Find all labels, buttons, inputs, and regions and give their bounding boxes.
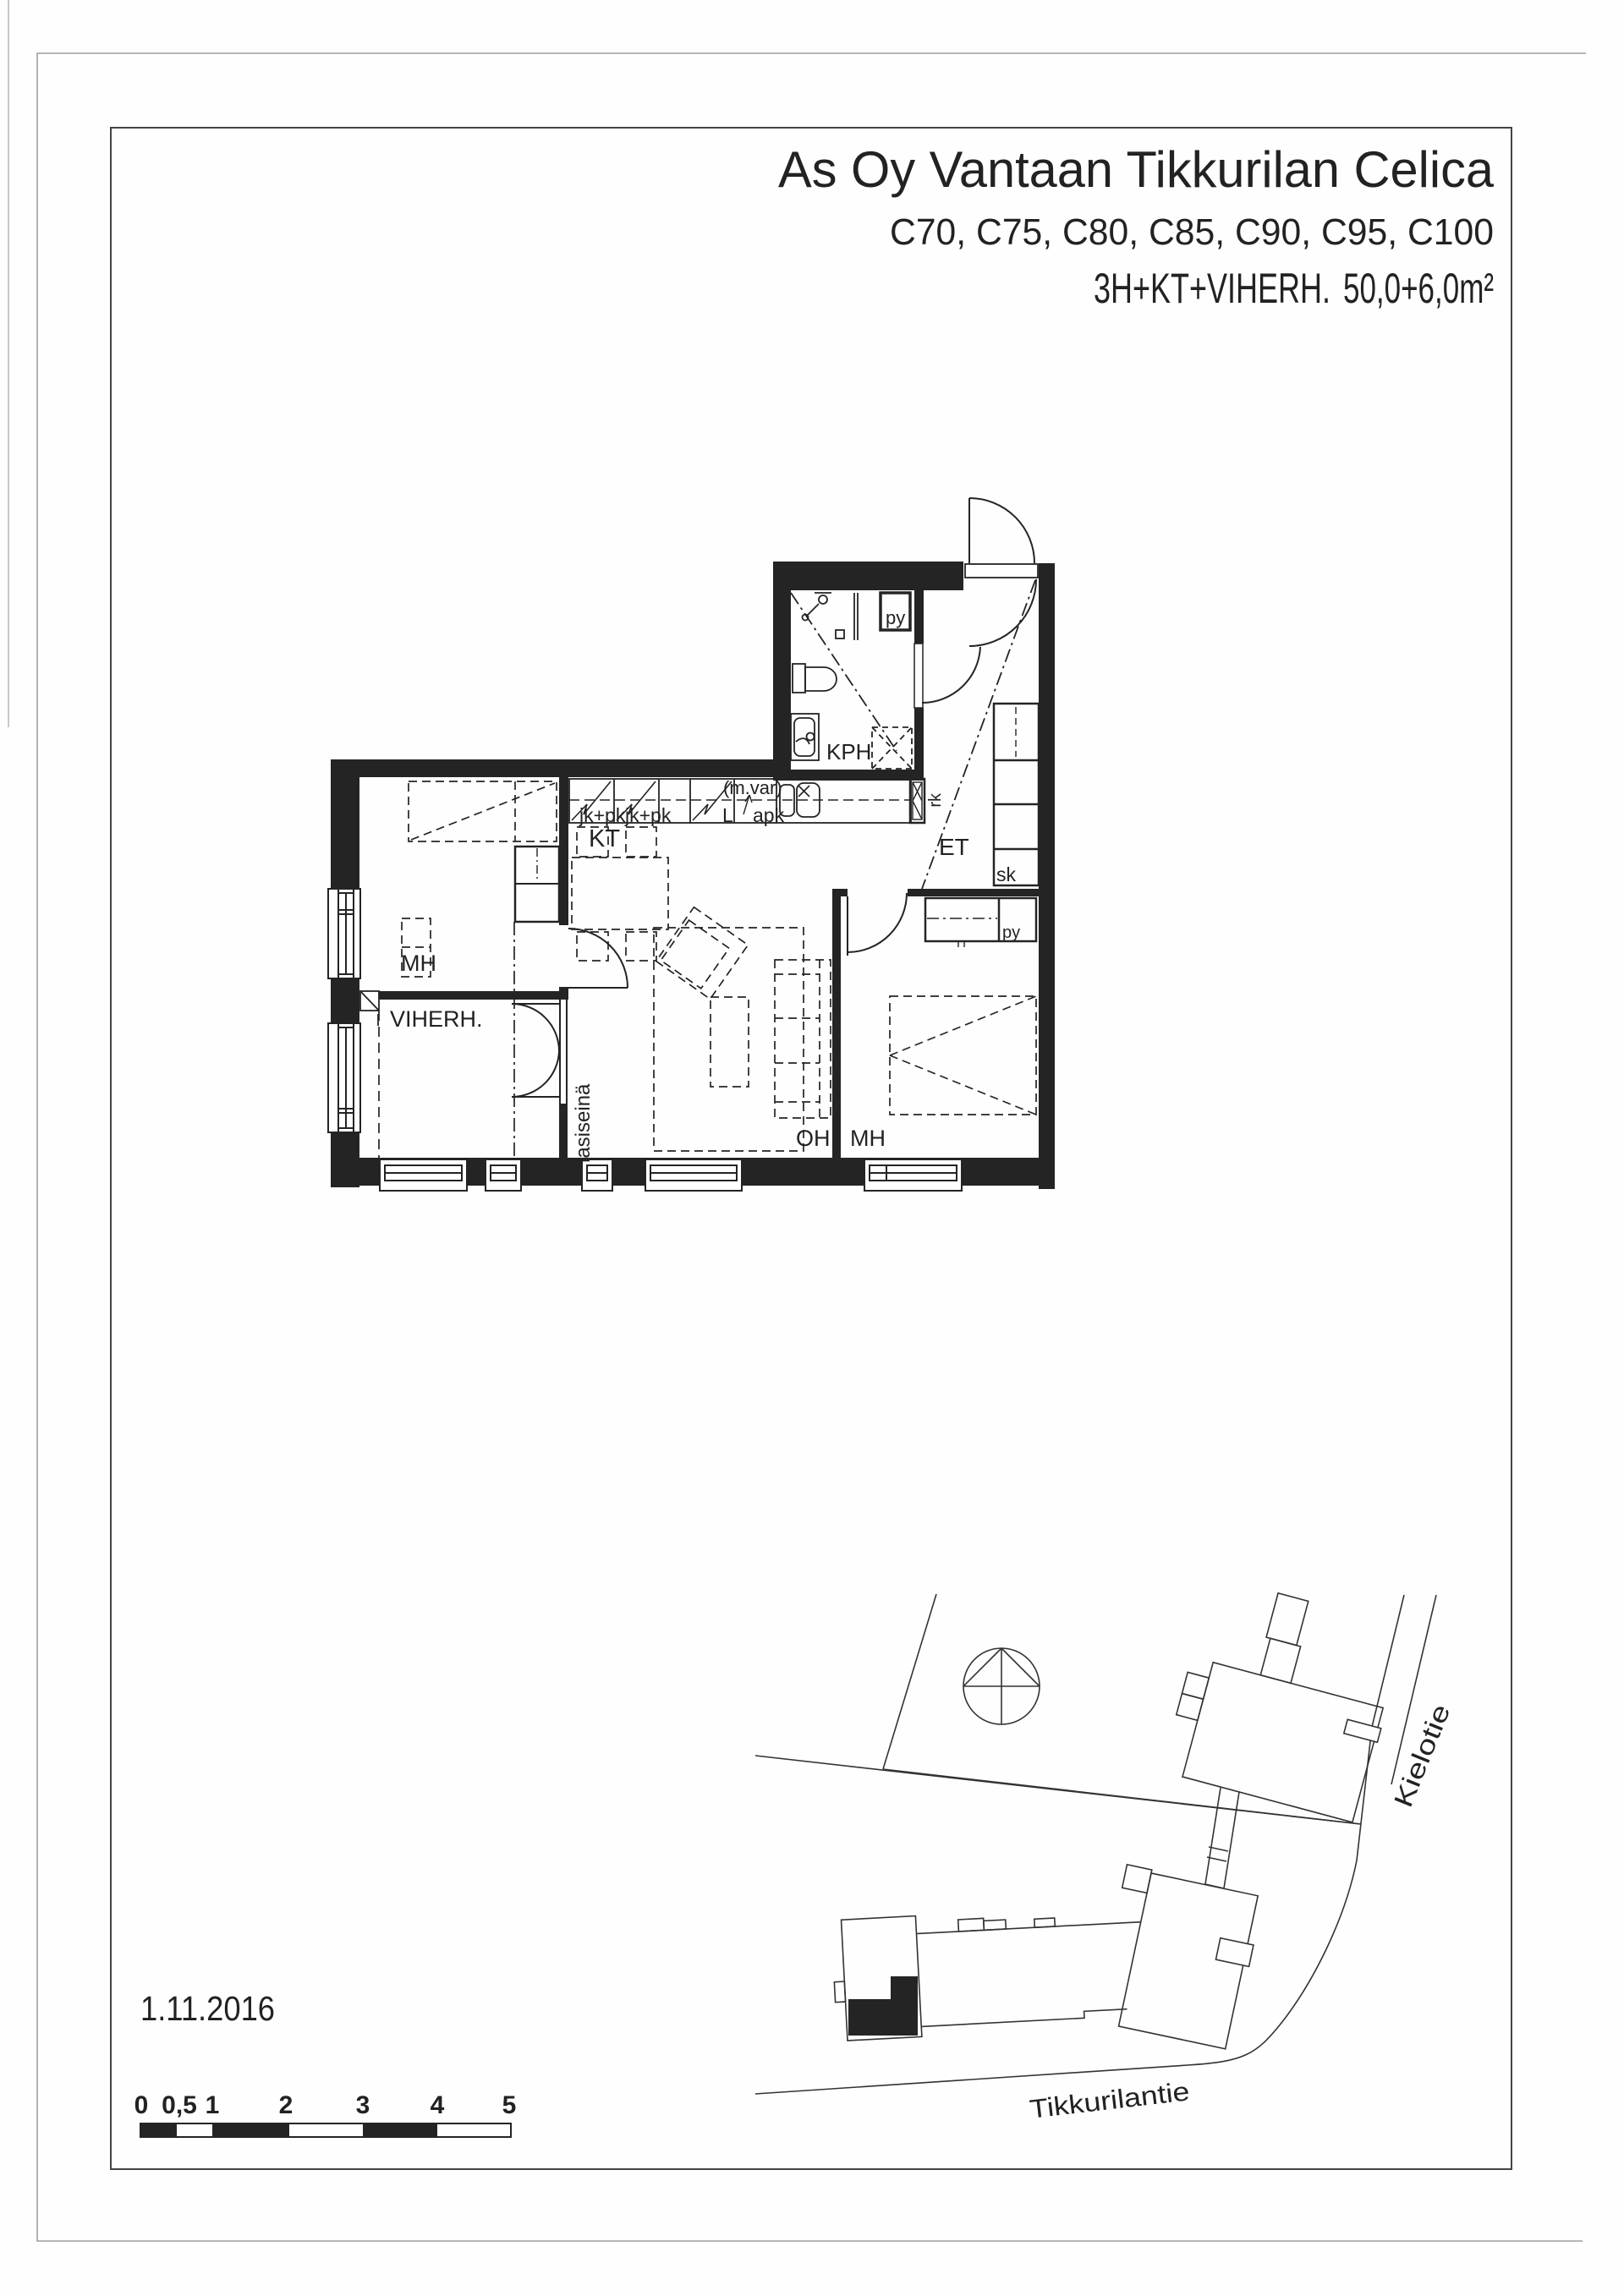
svg-text:(m.var): (m.var) [723,777,782,798]
svg-text:1: 1 [206,2091,220,2119]
svg-text:0,5: 0,5 [162,2091,197,2119]
svg-text:jk+pk: jk+pk [624,804,672,826]
svg-text:3: 3 [356,2091,370,2119]
svg-text:rk: rk [926,792,945,808]
svg-text:lasiseinä: lasiseinä [572,1083,595,1163]
svg-text:OH: OH [796,1126,831,1151]
svg-text:sk: sk [996,863,1017,885]
svg-text:1.11.2016: 1.11.2016 [140,1989,275,2028]
svg-text:2: 2 [279,2091,294,2119]
svg-text:MH: MH [850,1126,886,1151]
svg-text:jk+pk: jk+pk [579,804,626,826]
svg-text:KT: KT [589,825,620,852]
svg-text:3H+KT+VIHERH.: 3H+KT+VIHERH. [1094,265,1330,312]
svg-text:Tikkurilantie: Tikkurilantie [1028,2076,1191,2124]
svg-text:py: py [886,607,905,628]
svg-text:50,0+6,0m²: 50,0+6,0m² [1343,265,1494,312]
svg-text:L: L [722,804,733,826]
svg-text:0: 0 [134,2091,149,2119]
svg-text:5: 5 [502,2091,517,2119]
svg-text:py: py [1002,923,1020,942]
svg-text:VIHERH.: VIHERH. [390,1006,483,1032]
svg-text:MH: MH [401,951,436,976]
svg-text:apk: apk [753,804,785,826]
svg-text:KPH: KPH [826,739,871,764]
svg-text:4: 4 [431,2091,445,2119]
svg-text:ET: ET [939,834,969,860]
svg-text:C70, C75, C80, C85, C90, C95,: C70, C75, C80, C85, C90, C95, C100 [890,211,1494,253]
svg-text:As Oy Vantaan Tikkurilan Celic: As Oy Vantaan Tikkurilan Celica [778,141,1495,198]
